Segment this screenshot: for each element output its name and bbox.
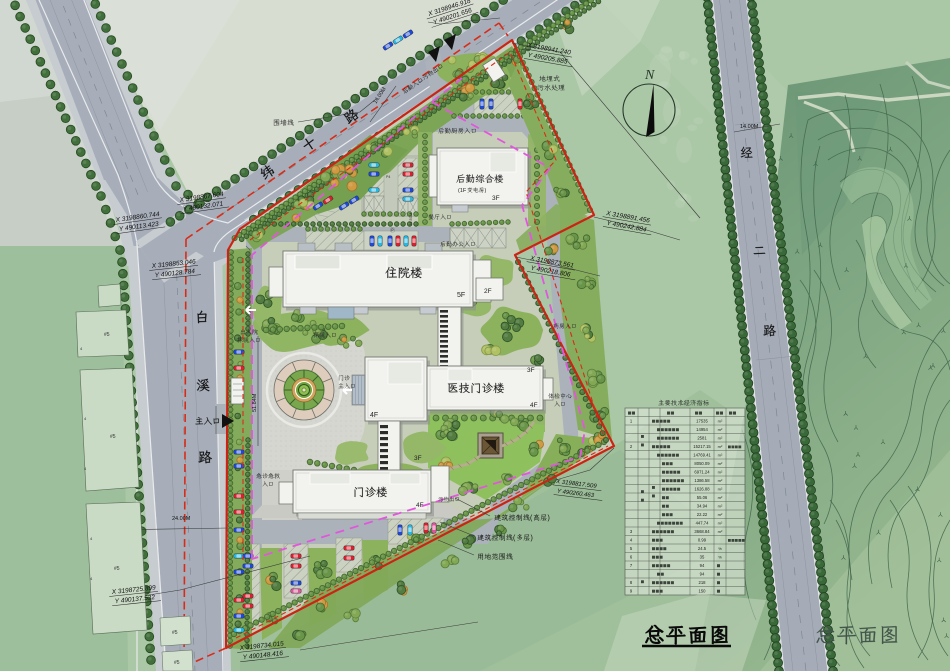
svg-text:m²: m² bbox=[718, 436, 723, 441]
svg-text:#5: #5 bbox=[104, 332, 110, 338]
svg-text:m²: m² bbox=[718, 444, 723, 449]
svg-text:#5: #5 bbox=[110, 434, 116, 440]
svg-text:150: 150 bbox=[699, 589, 707, 594]
svg-text:14769.41: 14769.41 bbox=[693, 453, 711, 458]
svg-text:51.84M: 51.84M bbox=[252, 393, 258, 412]
svg-text:Ⓟ: Ⓟ bbox=[390, 227, 395, 234]
svg-text:N: N bbox=[644, 68, 655, 83]
svg-text:m²: m² bbox=[718, 427, 723, 432]
svg-text:8050.09: 8050.09 bbox=[694, 461, 710, 466]
svg-text:1386.58: 1386.58 bbox=[694, 478, 710, 483]
svg-text:34.94: 34.94 bbox=[697, 504, 708, 509]
svg-text:24.5: 24.5 bbox=[698, 546, 707, 551]
svg-text:m²: m² bbox=[718, 495, 723, 500]
svg-text:): ) bbox=[485, 188, 487, 194]
svg-text:m²: m² bbox=[718, 470, 723, 475]
svg-text:): ) bbox=[548, 515, 550, 522]
svg-text:17535: 17535 bbox=[696, 419, 708, 424]
svg-text:#5: #5 bbox=[174, 660, 180, 666]
svg-text:#5: #5 bbox=[172, 630, 178, 636]
svg-text:3668.84: 3668.84 bbox=[694, 529, 710, 534]
svg-text:(1F: (1F bbox=[458, 188, 467, 194]
svg-text:4F: 4F bbox=[530, 402, 538, 409]
svg-text:3F: 3F bbox=[492, 195, 500, 202]
svg-text:%: % bbox=[718, 555, 722, 560]
svg-text:55.06: 55.06 bbox=[697, 495, 708, 500]
svg-text:94: 94 bbox=[700, 563, 705, 568]
svg-text:14954: 14954 bbox=[696, 427, 708, 432]
svg-text:2581: 2581 bbox=[697, 436, 707, 441]
svg-text:14.00M: 14.00M bbox=[740, 124, 759, 130]
svg-text:m²: m² bbox=[718, 478, 723, 483]
svg-text:0.99: 0.99 bbox=[698, 538, 707, 543]
svg-text:): ) bbox=[531, 535, 533, 542]
svg-text:m²: m² bbox=[718, 521, 723, 526]
svg-text:m²: m² bbox=[718, 487, 723, 492]
svg-text:m²: m² bbox=[718, 453, 723, 458]
svg-text:218: 218 bbox=[699, 580, 707, 585]
svg-text:15217.15: 15217.15 bbox=[693, 444, 711, 449]
svg-text:447.74: 447.74 bbox=[696, 521, 709, 526]
svg-text:%: % bbox=[718, 546, 722, 551]
svg-text:35: 35 bbox=[700, 555, 705, 560]
svg-text:m²: m² bbox=[718, 504, 723, 509]
svg-text:94: 94 bbox=[700, 572, 705, 577]
svg-text:3F: 3F bbox=[527, 367, 535, 374]
svg-text:m²: m² bbox=[718, 512, 723, 517]
svg-text:1626.88: 1626.88 bbox=[694, 487, 710, 492]
svg-text:m²: m² bbox=[718, 419, 723, 424]
svg-text:m²: m² bbox=[718, 529, 723, 534]
svg-text:5F: 5F bbox=[457, 292, 465, 299]
svg-text:24.00M: 24.00M bbox=[172, 516, 191, 522]
svg-text:4F: 4F bbox=[370, 412, 378, 419]
svg-text:m²: m² bbox=[718, 461, 723, 466]
svg-text:4F: 4F bbox=[416, 502, 424, 509]
svg-text:14.50M: 14.50M bbox=[408, 213, 413, 226]
svg-text:P4: P4 bbox=[386, 175, 390, 179]
svg-text:22.22: 22.22 bbox=[697, 512, 708, 517]
svg-text:2F: 2F bbox=[484, 288, 492, 295]
svg-text:3F: 3F bbox=[414, 455, 422, 462]
svg-text:6971.24: 6971.24 bbox=[694, 470, 710, 475]
svg-text:#5: #5 bbox=[114, 566, 120, 572]
